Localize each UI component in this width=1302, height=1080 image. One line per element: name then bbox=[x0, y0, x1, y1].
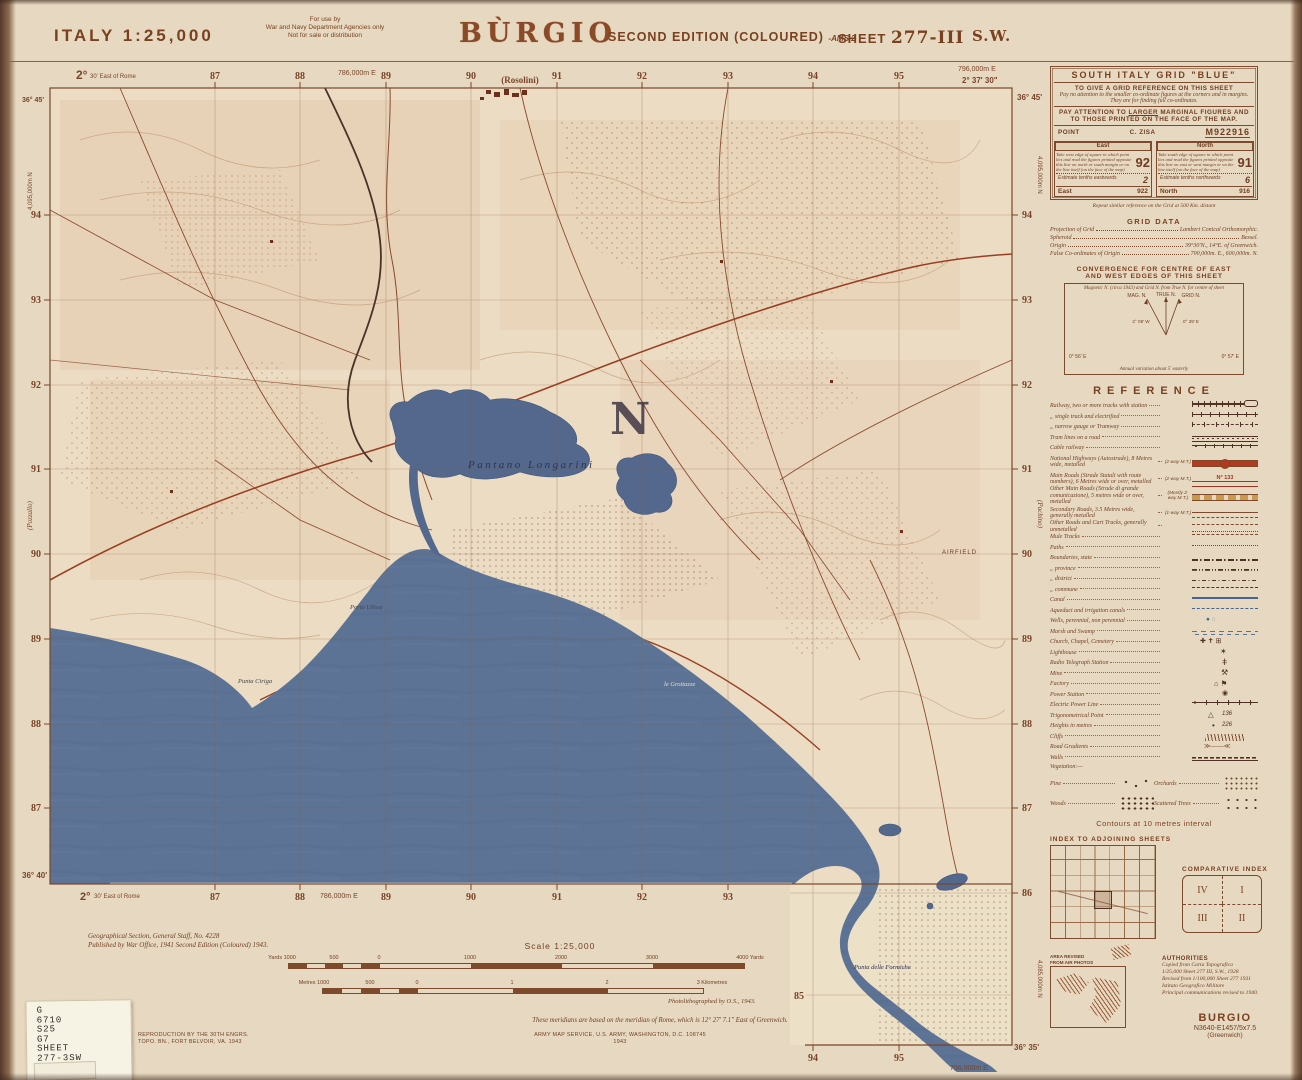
east-north-columns: East Take west edge of square in which p… bbox=[1054, 141, 1254, 197]
scale-label: 500 bbox=[365, 980, 374, 986]
svg-text:88: 88 bbox=[295, 892, 305, 903]
svg-text:4,085,000m N: 4,085,000m N bbox=[1036, 960, 1042, 998]
church-chapel-cemetery-symbol bbox=[1192, 638, 1258, 647]
svg-text:796,000m E: 796,000m E bbox=[958, 66, 996, 73]
quadrant-label: S.W. bbox=[972, 27, 1011, 45]
authorities-line: 1/25,000 Sheet 277 III, S.W., 1928 bbox=[1162, 969, 1272, 976]
grid-ref-attention: PAY ATTENTION TO LARGER MARGINAL FIGURES… bbox=[1054, 106, 1254, 123]
grid-data-label: False Co-ordinates of Origin bbox=[1050, 250, 1120, 258]
east-foot-label: East bbox=[1058, 188, 1072, 195]
sheet-label: SHEET bbox=[838, 31, 886, 46]
legend-label: Road Gradients bbox=[1050, 744, 1088, 751]
svg-text:90: 90 bbox=[31, 549, 41, 560]
edition-text: SECOND EDITION (COLOURED) bbox=[608, 30, 824, 44]
svg-text:2° 37' 30": 2° 37' 30" bbox=[962, 76, 998, 85]
svg-text:91: 91 bbox=[552, 892, 562, 903]
edition-label: SECOND EDITION (COLOURED) -AMS 2 bbox=[608, 30, 856, 44]
road-gradient-symbol bbox=[1192, 743, 1258, 752]
east-instructions: Take west edge of square in which point … bbox=[1056, 152, 1134, 172]
sheet-identifier: BURGIO N3640-E1457/5x7.5 (Greenwich) bbox=[1150, 1012, 1300, 1039]
svg-text:91: 91 bbox=[31, 464, 41, 475]
sheet-id-name: BURGIO bbox=[1150, 1012, 1300, 1024]
svg-text:90: 90 bbox=[1022, 549, 1032, 560]
svg-text:93: 93 bbox=[723, 892, 733, 903]
svg-text:0° 39' E: 0° 39' E bbox=[1183, 319, 1199, 324]
marsh-symbol bbox=[1192, 630, 1258, 636]
east-big-figure: 92 bbox=[1136, 155, 1150, 170]
legend-label: „ district bbox=[1050, 576, 1072, 583]
scale-title: Scale 1:25,000 bbox=[430, 941, 690, 951]
grid-data-label: Origin bbox=[1050, 242, 1066, 250]
convergence-section: CONVERGENCE FOR CENTRE OF EAST AND WEST … bbox=[1050, 266, 1258, 375]
legend-label: Marsh and Swamp bbox=[1050, 629, 1095, 636]
trig-value: 136 bbox=[1222, 711, 1232, 717]
grid-data-value: 700,000m. E., 600,000m. N. bbox=[1191, 250, 1258, 258]
svg-text:93: 93 bbox=[723, 71, 733, 82]
attention-1: PAY ATTENTION TO bbox=[1059, 109, 1126, 116]
reproduction-note: REPRODUCTION BY THE 30TH ENGRS. TOPO. BN… bbox=[138, 1032, 249, 1046]
svg-text:89: 89 bbox=[381, 892, 391, 903]
legend-label: „ commune bbox=[1050, 587, 1078, 594]
svg-text:95: 95 bbox=[894, 71, 904, 82]
convergence-title2: AND WEST EDGES OF THIS SHEET bbox=[1050, 273, 1258, 280]
point-row: POINT C. ZISA M922916 bbox=[1054, 125, 1254, 139]
svg-text:92: 92 bbox=[31, 380, 41, 391]
north-foot-value: 916 bbox=[1239, 188, 1250, 195]
east-foot-value: 922 bbox=[1137, 188, 1148, 195]
grid-data-value: 39°30'N., 14°E. of Greenwich. bbox=[1185, 242, 1258, 250]
legend-label: Radio Telegraph Station bbox=[1050, 660, 1108, 667]
legend-label: Cliffs bbox=[1050, 734, 1063, 741]
svg-text:94: 94 bbox=[1022, 210, 1032, 221]
svg-text:94: 94 bbox=[31, 210, 41, 221]
svg-text:93: 93 bbox=[31, 295, 41, 306]
annual-variation-note: Annual variation about 5' easterly bbox=[1065, 367, 1243, 372]
svg-text:2°: 2° bbox=[80, 891, 91, 903]
legend-label: National Highways (Autostrade), 8 Metres… bbox=[1050, 456, 1156, 469]
svg-text:88: 88 bbox=[31, 719, 41, 730]
authorities-line: Copied from Carta Topografica bbox=[1162, 962, 1272, 969]
cliffs-symbol bbox=[1192, 734, 1258, 741]
grid-data-section: GRID DATA Projection of GridLambert Coni… bbox=[1050, 217, 1258, 258]
province-boundary-symbol bbox=[1192, 569, 1258, 572]
legend-label: Boundaries, state bbox=[1050, 555, 1092, 562]
legend-label: Secondary Roads, 3.5 Metres wide, genera… bbox=[1050, 507, 1156, 520]
grid-ref-heading: TO GIVE A GRID REFERENCE ON THIS SHEET bbox=[1054, 82, 1254, 92]
scattered-trees-label: Scattered Trees bbox=[1154, 801, 1191, 808]
legend-label: Tram lines on a road bbox=[1050, 435, 1100, 442]
point-label: POINT bbox=[1058, 129, 1080, 136]
svg-text:36° 35': 36° 35' bbox=[1014, 1043, 1039, 1052]
reference-title: REFERENCE bbox=[1050, 385, 1258, 397]
svg-text:(Pozzallo): (Pozzallo) bbox=[26, 501, 34, 530]
reference-legend: Railway, two or more tracks with station… bbox=[1050, 401, 1258, 828]
point-name: C. ZISA bbox=[1130, 129, 1156, 136]
state-boundary-symbol bbox=[1192, 558, 1258, 561]
svg-text:2° 08' W: 2° 08' W bbox=[1132, 319, 1150, 324]
convergence-diagram: Magnetic N. (circa 1943) and Grid N. fro… bbox=[1064, 283, 1244, 375]
gsgs-line2: Published by War Office, 1941 Second Edi… bbox=[88, 941, 268, 950]
legend-label: Canal bbox=[1050, 597, 1065, 604]
authorities-line: Principal communications revised to 1940… bbox=[1162, 990, 1272, 997]
scale-label: 2000 bbox=[555, 955, 567, 961]
quadrant-iv: IV bbox=[1183, 876, 1222, 904]
sheet-id-datum: (Greenwich) bbox=[1150, 1032, 1300, 1039]
svg-text:(Pachino): (Pachino) bbox=[1036, 500, 1044, 529]
scan-edge-bottom bbox=[0, 1073, 1302, 1080]
gsgs-imprint: Geographical Section, General Staff, No.… bbox=[88, 932, 268, 950]
legend-note: (Mostly 2-way M.T.) bbox=[1164, 491, 1192, 501]
scale-label: 4000 Yards bbox=[736, 955, 764, 961]
scan-edge-left bbox=[0, 0, 16, 1080]
label-punta-ciriga: Punta Ciriga bbox=[237, 678, 272, 685]
woods-symbol bbox=[1120, 796, 1154, 812]
svg-text:85: 85 bbox=[794, 991, 804, 1002]
svg-text:89: 89 bbox=[1022, 634, 1032, 645]
comparative-index: COMPARATIVE INDEX IV I III II bbox=[1182, 866, 1268, 933]
main-road-symbol: N° 133 bbox=[1192, 475, 1258, 484]
grid-data-value: Bessel. bbox=[1241, 234, 1258, 242]
restriction-line3: Not for sale or distribution bbox=[240, 32, 410, 40]
grid-ref-note2: They are for finding full co-ordinates. bbox=[1054, 98, 1254, 104]
ams-line2: 1943 bbox=[470, 1039, 770, 1046]
pine-symbol bbox=[1120, 776, 1154, 792]
cart-track-symbol bbox=[1192, 524, 1258, 532]
radio-telegraph-symbol bbox=[1192, 659, 1258, 668]
scale-label: Yards 1000 bbox=[268, 955, 296, 961]
point-reference: M922916 bbox=[1205, 127, 1250, 138]
legend-label: „ single track and electrified bbox=[1050, 414, 1119, 421]
mine-symbol bbox=[1192, 669, 1258, 678]
svg-text:36° 45': 36° 45' bbox=[1017, 93, 1042, 102]
legend-label: Cable railway bbox=[1050, 445, 1084, 452]
north-foot-label: North bbox=[1160, 188, 1177, 195]
orchards-label: Orchards bbox=[1154, 781, 1177, 788]
grid-data-label: Spheroid bbox=[1050, 234, 1071, 242]
mule-track-symbol bbox=[1192, 534, 1258, 544]
svg-text:92: 92 bbox=[637, 892, 647, 903]
corner-angle-right: 0° 57' E bbox=[1222, 354, 1239, 360]
map-canvas: 8788 8990 9192 9394 95 9493 9291 9089 88… bbox=[20, 60, 1048, 1072]
gsgs-line1: Geographical Section, General Staff, No.… bbox=[88, 932, 268, 941]
factory-symbol bbox=[1192, 680, 1258, 689]
north-instructions: Take south edge of square in which point… bbox=[1158, 152, 1236, 172]
grid-data-label: Projection of Grid bbox=[1050, 226, 1094, 234]
scale-label: 3 Kilometres bbox=[697, 980, 728, 986]
woods-label: Woods bbox=[1050, 801, 1066, 808]
svg-text:TRUE N.: TRUE N. bbox=[1156, 292, 1176, 298]
east-tenth: 2 bbox=[1143, 175, 1148, 185]
svg-text:30' East of Rome: 30' East of Rome bbox=[94, 894, 140, 900]
svg-text:94: 94 bbox=[808, 1053, 818, 1064]
vegetation-symbols: Pine Orchards Woods Scattered Trees bbox=[1050, 774, 1258, 814]
legend-note: (1-way M.T.) bbox=[1164, 511, 1192, 516]
ams-imprint: ARMY MAP SERVICE, U.S. ARMY, WASHINGTON,… bbox=[470, 1032, 770, 1046]
svg-text:94: 94 bbox=[808, 71, 818, 82]
convergence-note: Magnetic N. (circa 1943) and Grid N. fro… bbox=[1067, 286, 1241, 291]
comparative-index-title: COMPARATIVE INDEX bbox=[1182, 866, 1268, 873]
tram-lines-symbol bbox=[1192, 436, 1258, 442]
cable-railway-symbol bbox=[1192, 445, 1258, 455]
svg-text:92: 92 bbox=[637, 71, 647, 82]
svg-text:87: 87 bbox=[210, 892, 220, 903]
quadrant-ii: II bbox=[1222, 904, 1261, 932]
path-symbol bbox=[1192, 545, 1258, 555]
east-estimate-label: Estimate tenths eastwards bbox=[1058, 175, 1117, 185]
legend-label: Main Roads (Strade Statali with route nu… bbox=[1050, 473, 1156, 486]
contours-note: Contours at 10 metres interval bbox=[1050, 819, 1258, 828]
svg-text:(Rosolini): (Rosolini) bbox=[501, 75, 539, 85]
legend-label: Church, Chapel, Cemetery bbox=[1050, 639, 1114, 646]
legend-label: Railway, two or more tracks with station bbox=[1050, 403, 1147, 410]
scale-label: 3000 bbox=[646, 955, 658, 961]
legend-label: Power Station bbox=[1050, 692, 1084, 699]
legend-label: „ province bbox=[1050, 566, 1076, 573]
label-airfield: AIRFIELD bbox=[942, 550, 977, 556]
north-heading: North bbox=[1157, 142, 1253, 151]
legend-label: Aqueduct and irrigation canals bbox=[1050, 608, 1125, 615]
svg-text:87: 87 bbox=[31, 803, 41, 814]
label-porto-ulisse: Porto Ulisse bbox=[349, 604, 383, 611]
scale-label: Metres 1000 bbox=[299, 980, 330, 986]
grid-data-value: Lambert Conical Orthomorphic. bbox=[1180, 226, 1258, 234]
svg-text:91: 91 bbox=[1022, 464, 1032, 475]
legend-note: (2-way M.T.) bbox=[1164, 477, 1192, 482]
index-section: INDEX TO ADJOINING SHEETS COMPARATIVE IN… bbox=[1050, 836, 1258, 948]
quadrant-i: I bbox=[1222, 876, 1261, 904]
svg-text:87: 87 bbox=[210, 71, 220, 82]
label-grottazze: le Grottazze bbox=[664, 681, 695, 688]
wells-symbol bbox=[1192, 617, 1258, 626]
svg-text:89: 89 bbox=[31, 634, 41, 645]
legend-label: Other Main Roads (Strade di grande comun… bbox=[1050, 486, 1156, 506]
scale-label: 0 bbox=[415, 980, 418, 986]
scattered-trees-symbol bbox=[1224, 796, 1258, 812]
ext-pond bbox=[927, 903, 933, 909]
commune-boundary-symbol bbox=[1192, 587, 1258, 597]
north-tenth: 6 bbox=[1245, 175, 1250, 185]
svg-text:86: 86 bbox=[1022, 888, 1032, 899]
canal-symbol bbox=[1192, 597, 1258, 608]
meridian-note: These meridians are based on the meridia… bbox=[440, 1017, 880, 1024]
air-photo-line2: FROM AIR PHOTOS bbox=[1050, 960, 1093, 965]
country-scale: ITALY 1:25,000 bbox=[54, 26, 214, 46]
other-main-road-symbol bbox=[1192, 494, 1258, 501]
adjoining-sheets-grid bbox=[1050, 845, 1156, 939]
air-photo-line1: AREA REVISED bbox=[1050, 954, 1084, 959]
svg-text:92: 92 bbox=[1022, 380, 1032, 391]
ext-lake-1 bbox=[879, 824, 901, 836]
svg-text:30' East of Rome: 30' East of Rome bbox=[90, 74, 136, 80]
label-formiche: Punta delle Formiche bbox=[853, 964, 911, 971]
lagoon-east bbox=[617, 454, 677, 515]
svg-text:796,000m E: 796,000m E bbox=[950, 1065, 988, 1072]
repro-line1: REPRODUCTION BY THE 30TH ENGRS. bbox=[138, 1032, 249, 1039]
air-photo-box: AREA REVISEDFROM AIR PHOTOS bbox=[1050, 954, 1130, 1028]
national-highway-symbol bbox=[1192, 460, 1258, 467]
scale-label: 1 bbox=[510, 980, 513, 986]
sheet-no: 277-III bbox=[891, 28, 964, 48]
svg-text:36° 40': 36° 40' bbox=[22, 871, 47, 880]
svg-text:786,000m E: 786,000m E bbox=[338, 70, 376, 77]
district-letter-n: N bbox=[610, 394, 650, 445]
east-column: East Take west edge of square in which p… bbox=[1054, 141, 1152, 197]
map-sheet-scan: ITALY 1:25,000 For use by War and Navy D… bbox=[0, 0, 1302, 1080]
svg-text:88: 88 bbox=[295, 71, 305, 82]
svg-text:87: 87 bbox=[1022, 803, 1032, 814]
grid-data-title: GRID DATA bbox=[1050, 217, 1258, 226]
svg-text:90: 90 bbox=[466, 892, 476, 903]
svg-text:4,095,000m N: 4,095,000m N bbox=[1036, 156, 1042, 194]
svg-text:90: 90 bbox=[466, 71, 476, 82]
attention-3: THOSE PRINTED ON THE FACE OF THE MAP. bbox=[1082, 116, 1237, 123]
sheet-number: SHEET 277-III bbox=[838, 28, 964, 48]
scale-label: 1000 bbox=[464, 955, 476, 961]
repro-line2: TOPO. BN., FORT BELVOIR, VA. 1943 bbox=[138, 1039, 249, 1046]
legend-label: Heights in metres bbox=[1050, 723, 1092, 730]
scan-edge-top bbox=[0, 0, 1302, 5]
svg-text:4,095,000m N: 4,095,000m N bbox=[28, 172, 34, 210]
sheet-id-code: N3640-E1457/5x7.5 bbox=[1150, 1025, 1300, 1032]
svg-text:93: 93 bbox=[1022, 295, 1032, 306]
quadrant-iii: III bbox=[1183, 904, 1222, 932]
scale-label: 2 bbox=[605, 980, 608, 986]
vegetation-heading: Vegetation:— bbox=[1050, 764, 1083, 771]
district-boundary-symbol bbox=[1192, 579, 1258, 582]
legend-label: Trigonometrical Point bbox=[1050, 713, 1104, 720]
legend-label: Other Roads and Cart Tracks, generally u… bbox=[1050, 520, 1156, 533]
ams-line1: ARMY MAP SERVICE, U.S. ARMY, WASHINGTON,… bbox=[470, 1032, 770, 1039]
railway-narrow-gauge-symbol bbox=[1192, 424, 1258, 434]
grid-repeat-note: Repeat similar reference on the Grid at … bbox=[1050, 203, 1258, 209]
sheet-title: BÙRGIO bbox=[458, 18, 618, 49]
svg-text:2°: 2° bbox=[76, 68, 88, 82]
scale-label: 500 bbox=[329, 955, 338, 961]
north-estimate-label: Estimate tenths northwards bbox=[1160, 175, 1221, 185]
legend-label: „ narrow gauge or Tramway bbox=[1050, 424, 1119, 431]
margin-panel: SOUTH ITALY GRID "BLUE" TO GIVE A GRID R… bbox=[1050, 66, 1258, 1044]
legend-label: Electric Power Line bbox=[1050, 702, 1098, 709]
trig-point-symbol: 136 bbox=[1192, 711, 1258, 720]
label-pantano-longarini: Pantano Longarini bbox=[467, 459, 595, 471]
yards-scale-bar: Yards 1000 500 0 1000 2000 3000 4000 Yar… bbox=[288, 955, 788, 971]
legend-label: Wells, perennial, non perennial bbox=[1050, 618, 1125, 625]
svg-text:GRID N.: GRID N. bbox=[1182, 293, 1201, 299]
photolitho-note: Photolithographed by O.S., 1943. bbox=[668, 998, 756, 1005]
restriction-line2: War and Navy Department Agencies only bbox=[240, 24, 410, 32]
scale-label: 0 bbox=[377, 955, 380, 961]
walls-symbol bbox=[1192, 757, 1258, 761]
svg-text:36° 45': 36° 45' bbox=[22, 96, 44, 104]
height-value: 226 bbox=[1222, 722, 1232, 728]
svg-text:95: 95 bbox=[894, 1053, 904, 1064]
legend-label: Lighthouse bbox=[1050, 650, 1077, 657]
restriction-note: For use by War and Navy Department Agenc… bbox=[240, 16, 410, 40]
authorities-line: Istituto Geografico Militare bbox=[1162, 983, 1272, 990]
height-symbol: 226 bbox=[1192, 722, 1258, 731]
authorities-line: Revised from 1/100,000 Sheet 277 1931 bbox=[1162, 976, 1272, 983]
metres-scale-bar: Metres 1000 500 0 1 2 3 Kilometres bbox=[322, 980, 742, 996]
legend-label: Walls bbox=[1050, 755, 1063, 762]
corner-angle-left: 0° 56' E bbox=[1069, 354, 1086, 360]
east-heading: East bbox=[1055, 142, 1151, 151]
pine-label: Pine bbox=[1050, 781, 1061, 788]
north-arrows-diagram: TRUE N. MAG. N. GRID N. 2° 08' W 0° 39' … bbox=[1067, 291, 1265, 343]
authorities-text: AUTHORITIES Copied from Carta Topografic… bbox=[1162, 956, 1272, 997]
adjoining-sheets-title: INDEX TO ADJOINING SHEETS bbox=[1050, 836, 1258, 843]
svg-text:88: 88 bbox=[1022, 719, 1032, 730]
legend-note: (2-way M.T.) bbox=[1164, 460, 1192, 465]
scan-edge-right bbox=[1290, 0, 1302, 1080]
orchards-symbol bbox=[1224, 776, 1258, 792]
svg-text:91: 91 bbox=[552, 71, 562, 82]
grid-reference-box: SOUTH ITALY GRID "BLUE" TO GIVE A GRID R… bbox=[1050, 66, 1258, 200]
secondary-road-symbol bbox=[1192, 512, 1258, 518]
legend-label: Mine bbox=[1050, 671, 1062, 678]
svg-text:89: 89 bbox=[381, 71, 391, 82]
grid-panel-title: SOUTH ITALY GRID "BLUE" bbox=[1054, 70, 1254, 80]
restriction-line1: For use by bbox=[240, 16, 410, 24]
north-column: North Take south edge of square in which… bbox=[1156, 141, 1254, 197]
svg-text:MAG. N.: MAG. N. bbox=[1127, 293, 1146, 299]
north-big-figure: 91 bbox=[1238, 155, 1252, 170]
attention-larger: LARGER bbox=[1128, 109, 1158, 116]
svg-text:786,000m E: 786,000m E bbox=[320, 893, 358, 900]
convergence-title1: CONVERGENCE FOR CENTRE OF EAST bbox=[1050, 266, 1258, 273]
legend-label: Factory bbox=[1050, 681, 1069, 688]
legend-label: Paths bbox=[1050, 545, 1064, 552]
power-station-symbol bbox=[1192, 690, 1258, 699]
legend-label: Mule Tracks bbox=[1050, 534, 1080, 541]
